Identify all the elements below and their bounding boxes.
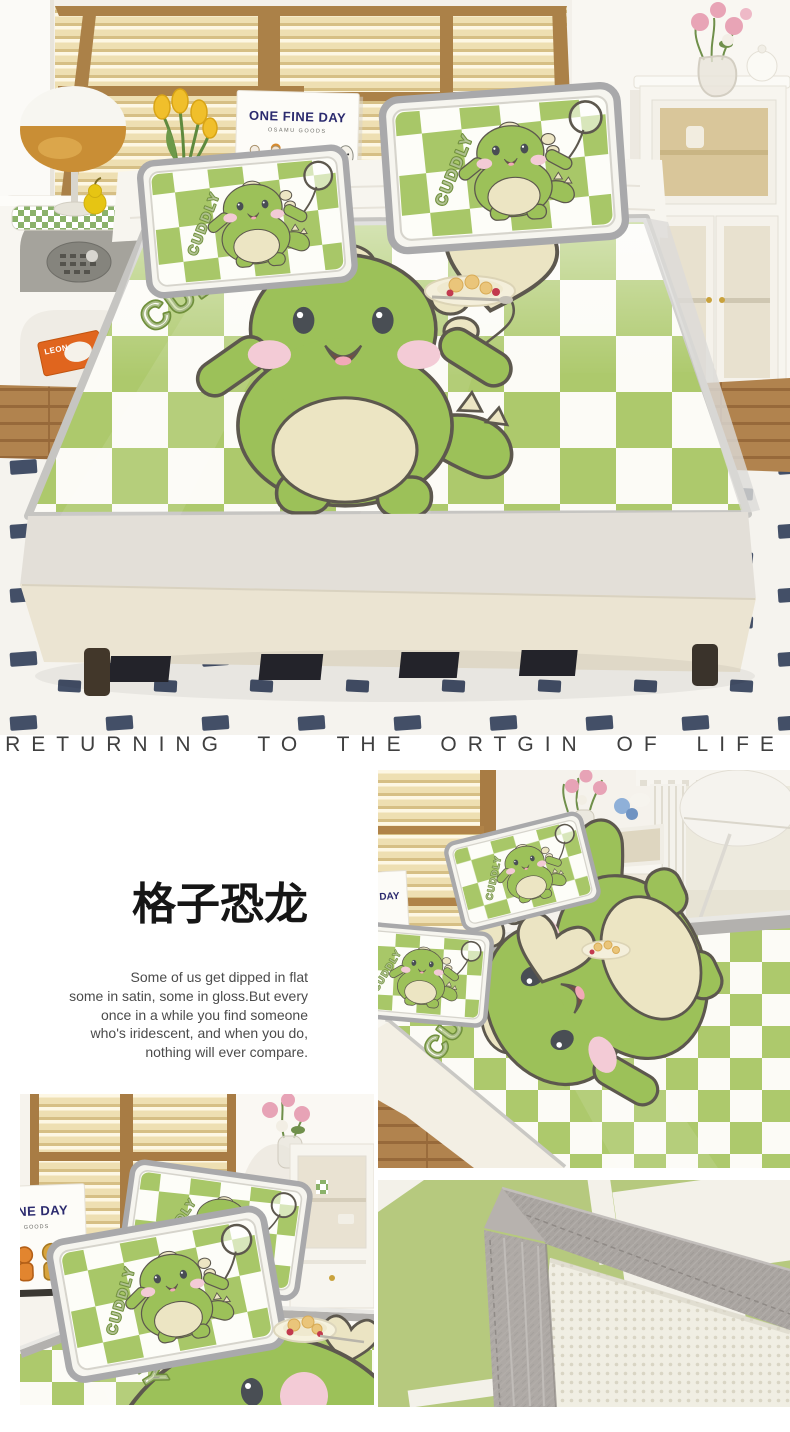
bed-leg <box>84 648 110 696</box>
description-line: who's iridescent, and when you do, <box>0 1024 308 1043</box>
photo-pillows-closeup: NE DAY GOODS DLY <box>20 1094 374 1405</box>
description-line: nothing will ever compare. <box>0 1043 308 1062</box>
speaker <box>47 242 111 282</box>
description-line: once in a while you find someone <box>0 1006 308 1025</box>
product-copy: 格子恐龙 Some of us get dipped in flat some … <box>0 868 308 1062</box>
product-title: 格子恐龙 <box>0 868 308 932</box>
product-detail-page: LEON <box>0 0 790 1432</box>
svg-text:NE DAY: NE DAY <box>20 1202 68 1219</box>
bed-base <box>20 512 756 702</box>
photo-fabric-detail <box>378 1180 790 1407</box>
snack-plate <box>582 941 630 959</box>
pillow-left <box>139 147 356 297</box>
pillow-right <box>381 85 626 252</box>
description-line: Some of us get dipped in flat <box>0 968 308 987</box>
bed-leg <box>692 644 718 686</box>
poster-title: ONE FINE DAY <box>249 108 347 126</box>
slogan-text: RETURNING TO THE ORTGIN OF LIFE <box>0 733 790 757</box>
teapot <box>747 51 777 81</box>
photo-side-bedroom: DAY <box>378 770 790 1168</box>
photo-main-bedroom: LEON <box>0 0 790 735</box>
svg-text:DAY: DAY <box>379 891 400 903</box>
description-line: some in satin, some in gloss.But every <box>0 987 308 1006</box>
pillow-front <box>378 922 493 1026</box>
snack-plate <box>425 275 515 306</box>
svg-text:GOODS: GOODS <box>24 1224 50 1231</box>
